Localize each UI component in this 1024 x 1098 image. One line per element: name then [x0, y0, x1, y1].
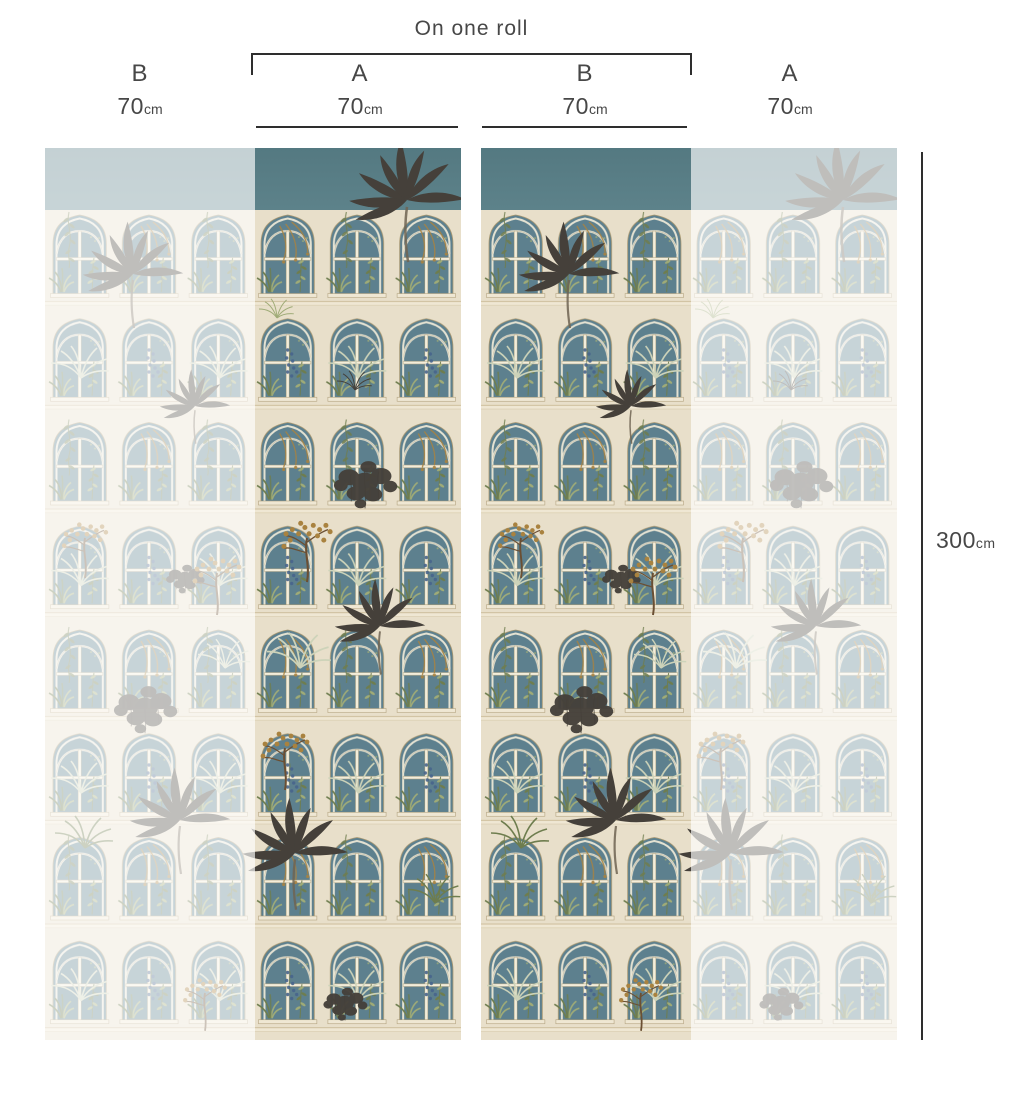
height-dimension-line	[921, 152, 923, 1040]
panel-width-label: 70cm	[720, 95, 860, 118]
wallpaper-layout-diagram: On one roll B 70cm A 70cm B 70cm A 70cm …	[0, 0, 1024, 1098]
panel-width-label: 70cm	[290, 95, 430, 118]
panel-label-b-left: B 70cm	[70, 62, 210, 118]
height-label: 300cm	[936, 527, 996, 554]
panel-letter: A	[720, 62, 860, 86]
fade-overlay-right	[691, 148, 897, 1040]
panel-letter: B	[515, 62, 655, 86]
roll-label: On one roll	[251, 17, 692, 41]
panel-label-a-roll: A 70cm	[290, 62, 430, 118]
panel-label-a-right: A 70cm	[720, 62, 860, 118]
fade-overlay-left	[45, 148, 255, 1040]
panel-letter: B	[70, 62, 210, 86]
wallpaper-drop-left	[45, 148, 461, 1040]
panel-label-b-roll: B 70cm	[515, 62, 655, 118]
width-underline-a	[256, 126, 458, 128]
panel-width-label: 70cm	[515, 95, 655, 118]
wallpaper-drop-right	[481, 148, 897, 1040]
panel-letter: A	[290, 62, 430, 86]
panel-width-label: 70cm	[70, 95, 210, 118]
width-underline-b	[482, 126, 687, 128]
